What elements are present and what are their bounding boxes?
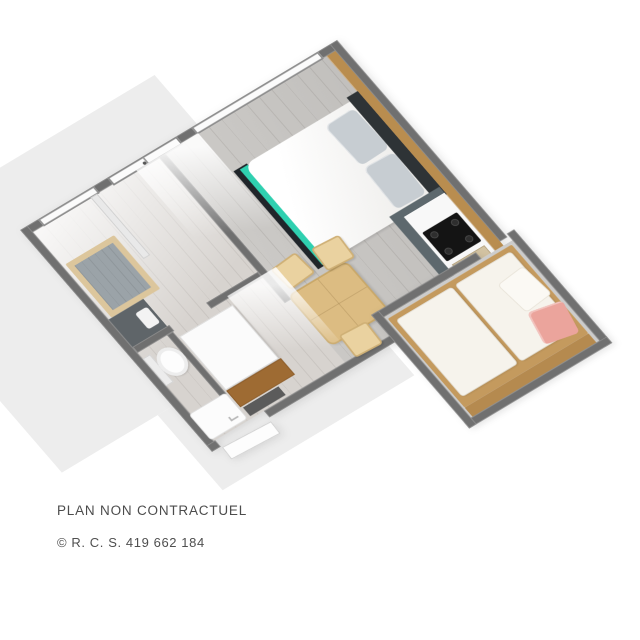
burner-icon	[429, 230, 441, 240]
caption-line-2: © R. C. S. 419 662 184	[57, 535, 247, 550]
caption: PLAN NON CONTRACTUEL © R. C. S. 419 662 …	[57, 503, 247, 550]
burner-icon	[463, 234, 475, 244]
burner-icon	[443, 246, 455, 256]
burner-icon	[449, 218, 461, 228]
brand-mark-icon	[228, 413, 239, 421]
floor-plan-canvas: PLAN NON CONTRACTUEL © R. C. S. 419 662 …	[0, 0, 640, 640]
isometric-scene	[20, 22, 640, 569]
caption-line-1: PLAN NON CONTRACTUEL	[57, 503, 247, 518]
